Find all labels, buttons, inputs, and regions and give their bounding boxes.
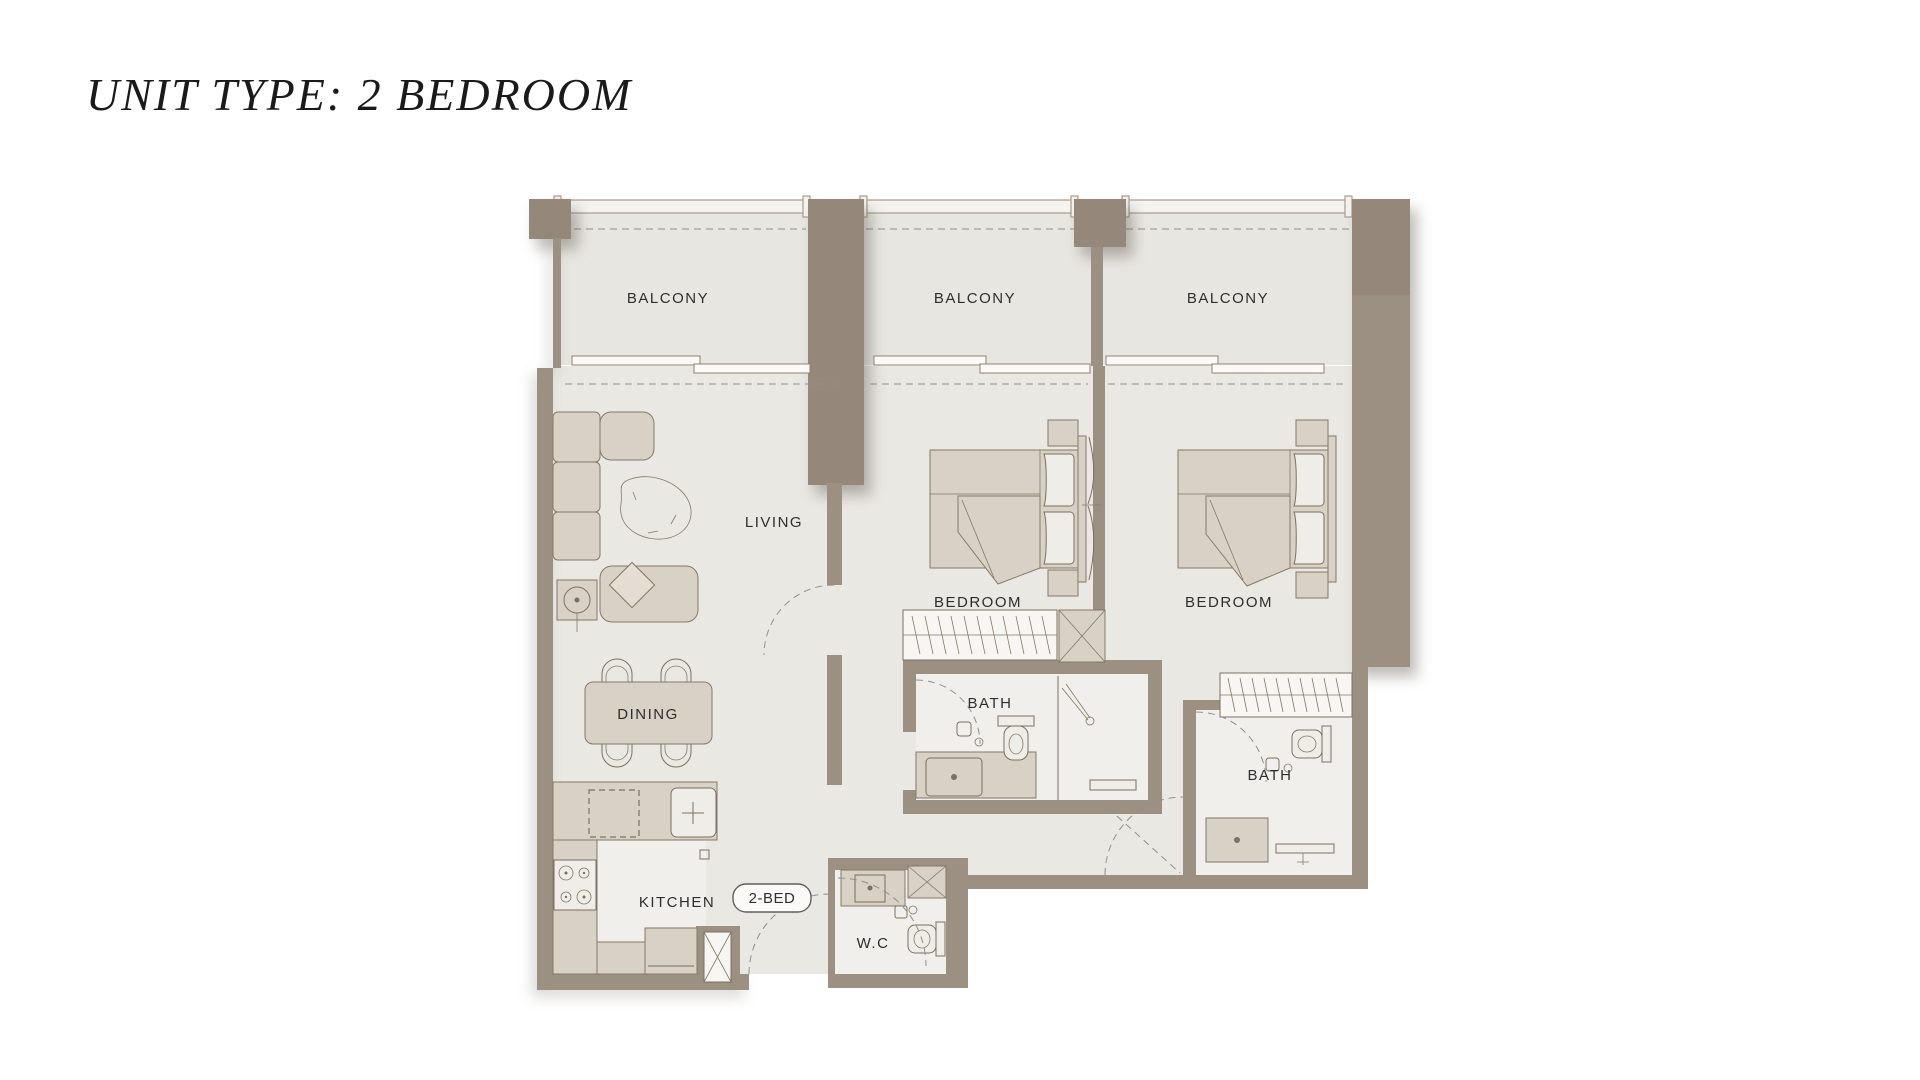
hall-bottom-wall bbox=[946, 875, 1366, 889]
wall-balc2-balc3 bbox=[1091, 247, 1103, 366]
sofa bbox=[553, 412, 600, 462]
room-label-balcony-2: BALCONY bbox=[934, 290, 1016, 307]
balcony1-left-rail bbox=[553, 238, 561, 368]
bed2-headboard bbox=[1328, 436, 1336, 582]
room-label-living: LIVING bbox=[745, 514, 803, 531]
pillow bbox=[1294, 512, 1324, 564]
room-label-balcony-3: BALCONY bbox=[1187, 290, 1269, 307]
room-label-bedroom-2: BEDROOM bbox=[1185, 594, 1273, 611]
pillow bbox=[1044, 454, 1074, 506]
chaise-lounge bbox=[600, 566, 698, 622]
nightstand bbox=[1048, 420, 1078, 446]
bed1-headboard bbox=[1078, 436, 1086, 582]
shower-drain bbox=[1090, 780, 1136, 790]
wall-living-bed1-b bbox=[827, 655, 842, 785]
room-label-wc: W.C bbox=[857, 935, 890, 952]
right-wall-low bbox=[1352, 667, 1368, 889]
pillow bbox=[1294, 454, 1324, 506]
stove bbox=[554, 860, 596, 910]
nightstand bbox=[1296, 420, 1328, 446]
page: UNIT TYPE: 2 BEDROOM bbox=[0, 0, 1920, 1080]
unit-type-badge-label: 2-BED bbox=[749, 890, 796, 907]
wc-toilet bbox=[936, 922, 945, 956]
room-label-kitchen: KITCHEN bbox=[639, 894, 715, 911]
floorplan: BALCONY BALCONY BALCONY LIVING DINING KI… bbox=[0, 0, 1920, 1080]
nightstand bbox=[1296, 572, 1328, 598]
column-balcony-2-3 bbox=[1074, 199, 1126, 247]
kitchen-counter-bottom bbox=[597, 942, 645, 974]
room-label-balcony-1: BALCONY bbox=[627, 290, 709, 307]
unit-type-badge: 2-BED bbox=[733, 884, 811, 912]
wall-living-bed1-a bbox=[827, 483, 842, 585]
room-label-bath-2: BATH bbox=[1248, 767, 1293, 784]
right-wall-top bbox=[1352, 199, 1410, 295]
pier-balcony-1-2 bbox=[808, 199, 864, 485]
nightstand bbox=[1048, 570, 1078, 596]
room-label-bath-1: BATH bbox=[968, 695, 1013, 712]
left-wall bbox=[537, 368, 553, 990]
pillow bbox=[1044, 512, 1074, 564]
bedroom1-furniture bbox=[903, 420, 1105, 662]
room-label-bedroom-1: BEDROOM bbox=[934, 594, 1022, 611]
room-label-dining: DINING bbox=[617, 706, 679, 723]
dishwasher bbox=[645, 928, 697, 974]
bath1-toilet bbox=[998, 716, 1034, 726]
bath2-toilet bbox=[1322, 726, 1331, 762]
bath2-shower-drain bbox=[1276, 844, 1334, 853]
column-top-left bbox=[529, 199, 571, 239]
right-wall-mid bbox=[1352, 295, 1410, 667]
